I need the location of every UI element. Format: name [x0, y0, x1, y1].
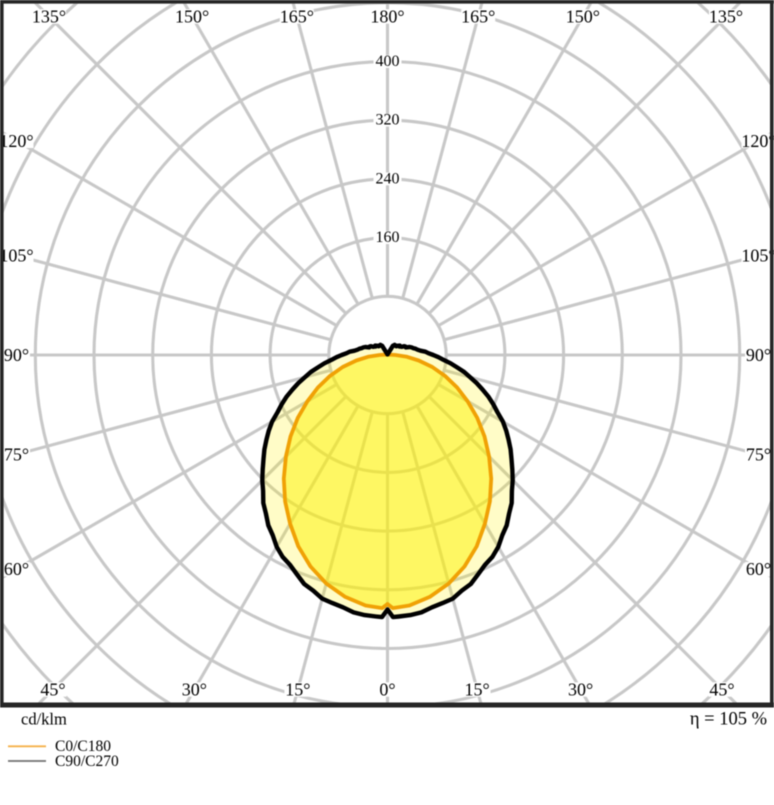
svg-text:135°: 135° — [709, 7, 743, 27]
svg-text:180°: 180° — [370, 7, 404, 27]
svg-text:45°: 45° — [709, 680, 734, 700]
svg-text:160: 160 — [376, 229, 400, 246]
svg-text:60°: 60° — [746, 559, 771, 579]
svg-text:0°: 0° — [379, 680, 395, 700]
svg-text:120°: 120° — [741, 131, 774, 151]
svg-text:150°: 150° — [566, 7, 600, 27]
svg-text:90°: 90° — [746, 345, 771, 365]
svg-text:320: 320 — [376, 112, 400, 129]
svg-text:105°: 105° — [741, 246, 774, 266]
svg-text:120°: 120° — [0, 131, 34, 151]
svg-text:105°: 105° — [0, 246, 34, 266]
svg-text:240: 240 — [376, 170, 400, 187]
svg-text:75°: 75° — [746, 444, 771, 464]
svg-text:75°: 75° — [4, 444, 29, 464]
svg-text:150°: 150° — [175, 7, 209, 27]
svg-text:400: 400 — [376, 53, 400, 70]
svg-text:η = 105 %: η = 105 % — [690, 710, 767, 730]
svg-text:90°: 90° — [4, 345, 29, 365]
svg-text:135°: 135° — [32, 7, 66, 27]
svg-text:30°: 30° — [568, 680, 593, 700]
svg-text:165°: 165° — [280, 7, 314, 27]
svg-text:45°: 45° — [40, 680, 65, 700]
svg-text:C90/C270: C90/C270 — [55, 753, 119, 770]
svg-text:30°: 30° — [182, 680, 207, 700]
svg-text:165°: 165° — [461, 7, 495, 27]
svg-text:15°: 15° — [464, 680, 489, 700]
svg-text:15°: 15° — [285, 680, 310, 700]
svg-text:cd/klm: cd/klm — [21, 710, 67, 729]
svg-text:60°: 60° — [4, 559, 29, 579]
